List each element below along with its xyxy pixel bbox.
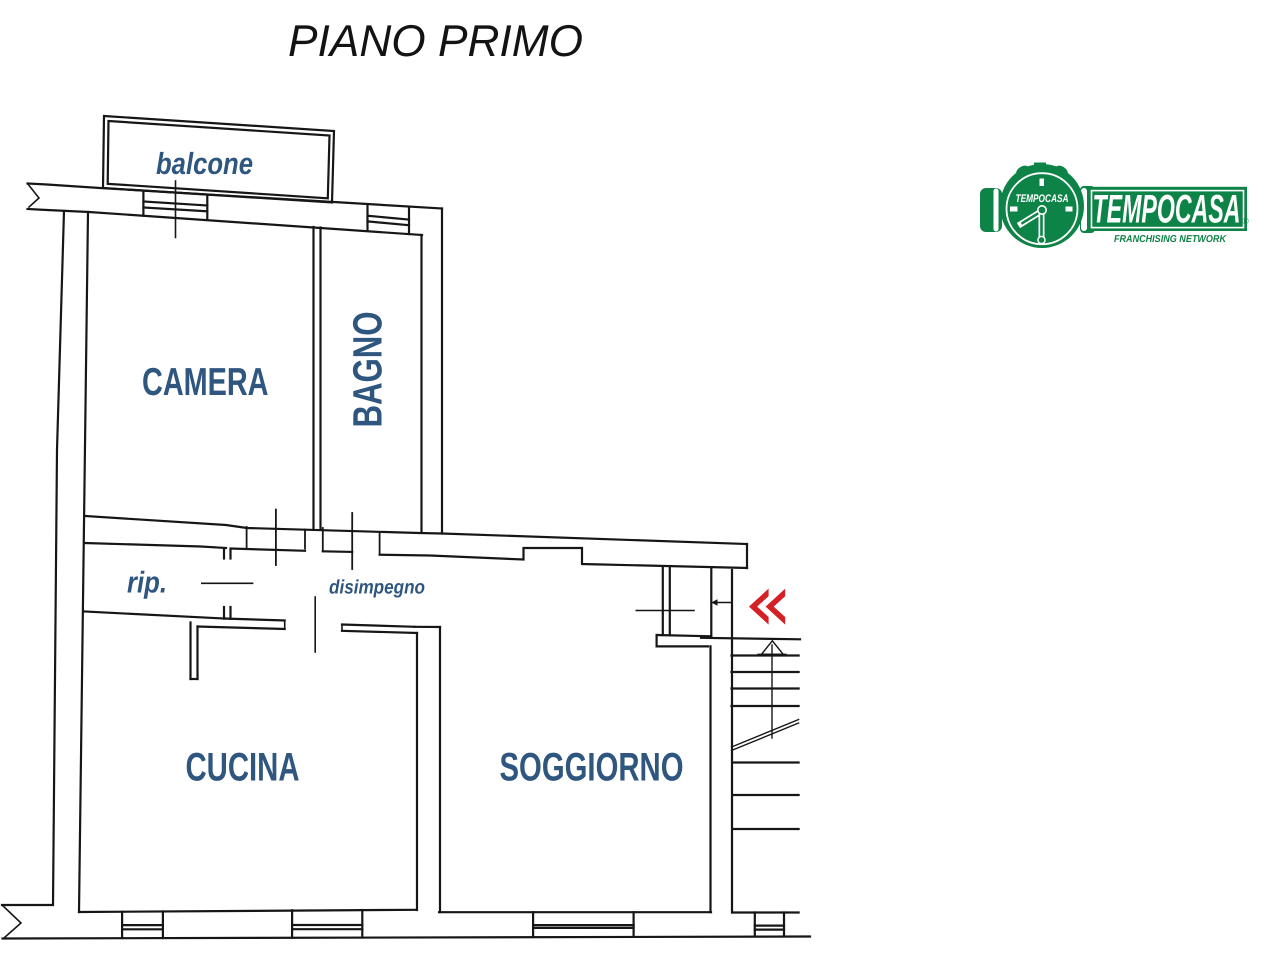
- svg-text:FRANCHISING NETWORK: FRANCHISING NETWORK: [1114, 234, 1227, 245]
- svg-text:®: ®: [1242, 216, 1249, 226]
- svg-text:TEMPOCASA: TEMPOCASA: [1016, 193, 1069, 205]
- svg-text:BAGNO: BAGNO: [345, 312, 391, 428]
- svg-text:balcone: balcone: [156, 147, 253, 181]
- svg-text:PIANO PRIMO: PIANO PRIMO: [288, 17, 583, 66]
- svg-text:rip.: rip.: [127, 567, 167, 600]
- svg-text:TEMPOCASA: TEMPOCASA: [1093, 188, 1241, 232]
- svg-text:CAMERA: CAMERA: [142, 361, 269, 404]
- svg-text:disimpegno: disimpegno: [329, 577, 425, 599]
- svg-text:CUCINA: CUCINA: [186, 746, 300, 790]
- svg-text:SOGGIORNO: SOGGIORNO: [500, 746, 684, 790]
